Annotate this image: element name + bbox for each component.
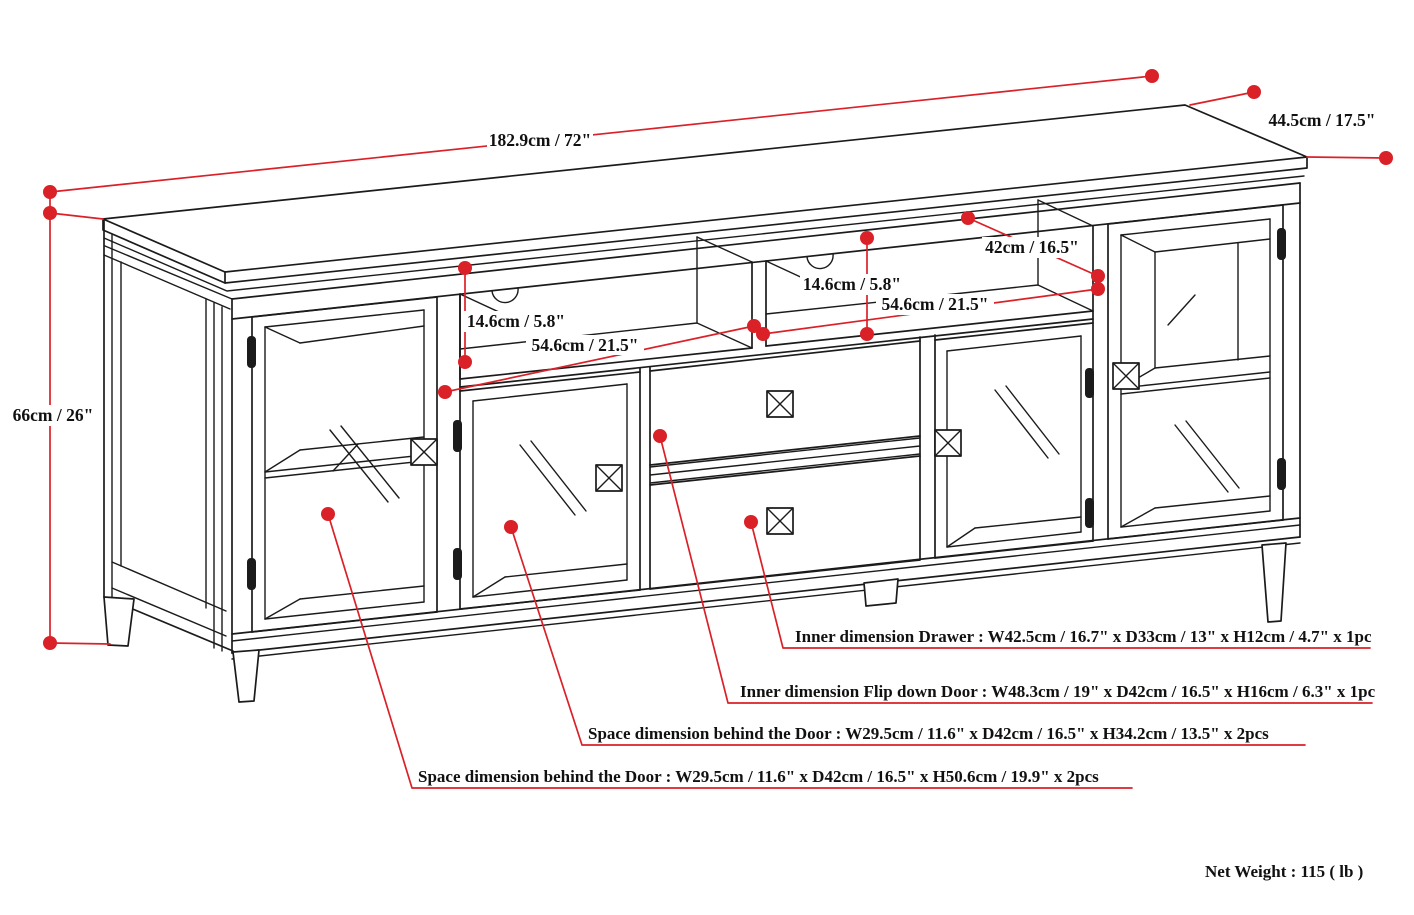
hinge-icon xyxy=(247,558,256,590)
bay-width-left-label: 54.6cm / 21.5" xyxy=(532,335,639,355)
hinge-icon xyxy=(247,336,256,368)
net-weight-text: Net Weight : 115 ( lb ) xyxy=(1205,862,1363,881)
hinge-icon xyxy=(1085,498,1094,528)
upper-drawer-knob-x-icon xyxy=(767,391,793,417)
shelf-height-right-label: 14.6cm / 5.8" xyxy=(803,274,901,294)
hinge-icon xyxy=(1085,368,1094,398)
width-dimension-label: 182.9cm / 72" xyxy=(489,130,592,150)
tv-stand-line-drawing: 182.9cm / 72" 44.5cm / 17.5" 66cm / 26" … xyxy=(0,0,1414,915)
hinge-icon xyxy=(1277,458,1286,490)
hinge-icon xyxy=(453,420,462,452)
depth-dimension-label: 44.5cm / 17.5" xyxy=(1269,110,1376,130)
door-1-knob-x-icon xyxy=(411,439,437,465)
bay-width-right-label: 54.6cm / 21.5" xyxy=(882,294,989,314)
callout-flip-down-door-text: Inner dimension Flip down Door : W48.3cm… xyxy=(740,682,1376,701)
lower-drawer-knob-x-icon xyxy=(767,508,793,534)
door-2-knob-x-icon xyxy=(596,465,622,491)
door-3-knob-x-icon xyxy=(935,430,961,456)
height-dimension-label: 66cm / 26" xyxy=(13,405,94,425)
callout-drawer-text: Inner dimension Drawer : W42.5cm / 16.7"… xyxy=(795,627,1372,646)
hinge-icon xyxy=(1277,228,1286,260)
callout-door-space-short-text: Space dimension behind the Door : W29.5c… xyxy=(588,724,1269,743)
door-4-knob-x-icon xyxy=(1113,363,1139,389)
shelf-height-left-label: 14.6cm / 5.8" xyxy=(467,311,565,331)
furniture-dimension-diagram: 182.9cm / 72" 44.5cm / 17.5" 66cm / 26" … xyxy=(0,0,1414,915)
callout-door-space-tall-text: Space dimension behind the Door : W29.5c… xyxy=(418,767,1099,786)
hinge-icon xyxy=(453,548,462,580)
shelf-depth-label: 42cm / 16.5" xyxy=(985,237,1079,257)
